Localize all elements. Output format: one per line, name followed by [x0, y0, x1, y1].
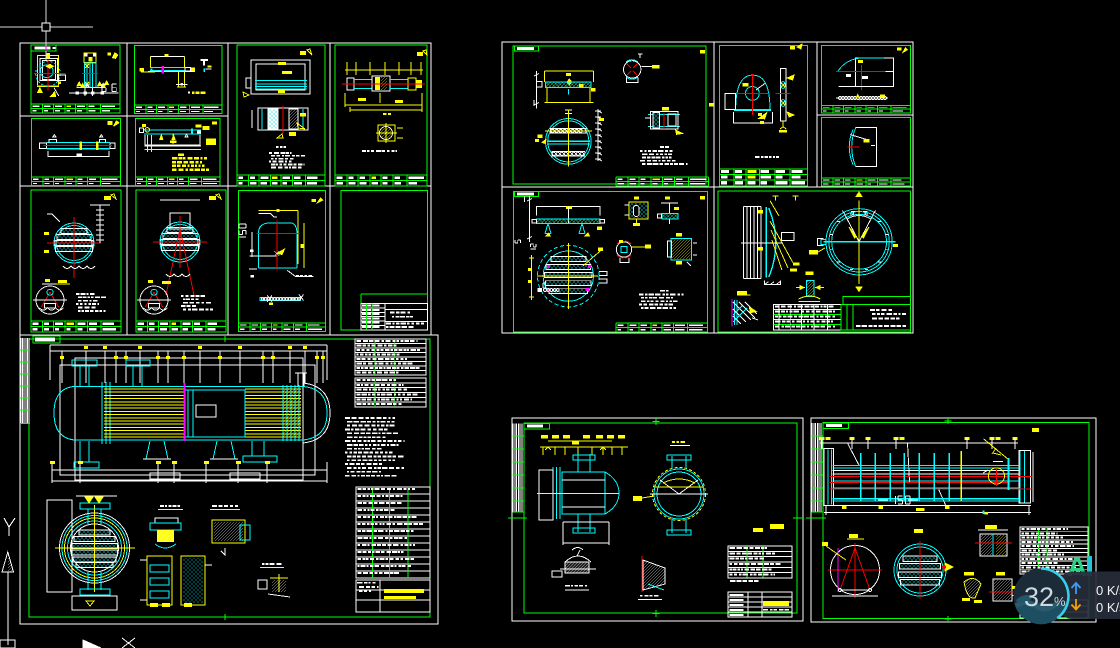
svg-text:%: %: [1054, 594, 1066, 609]
svg-text:0 K/s: 0 K/s: [1096, 600, 1120, 615]
svg-text:32: 32: [1024, 582, 1054, 612]
svg-text:0 K/s: 0 K/s: [1096, 583, 1120, 598]
